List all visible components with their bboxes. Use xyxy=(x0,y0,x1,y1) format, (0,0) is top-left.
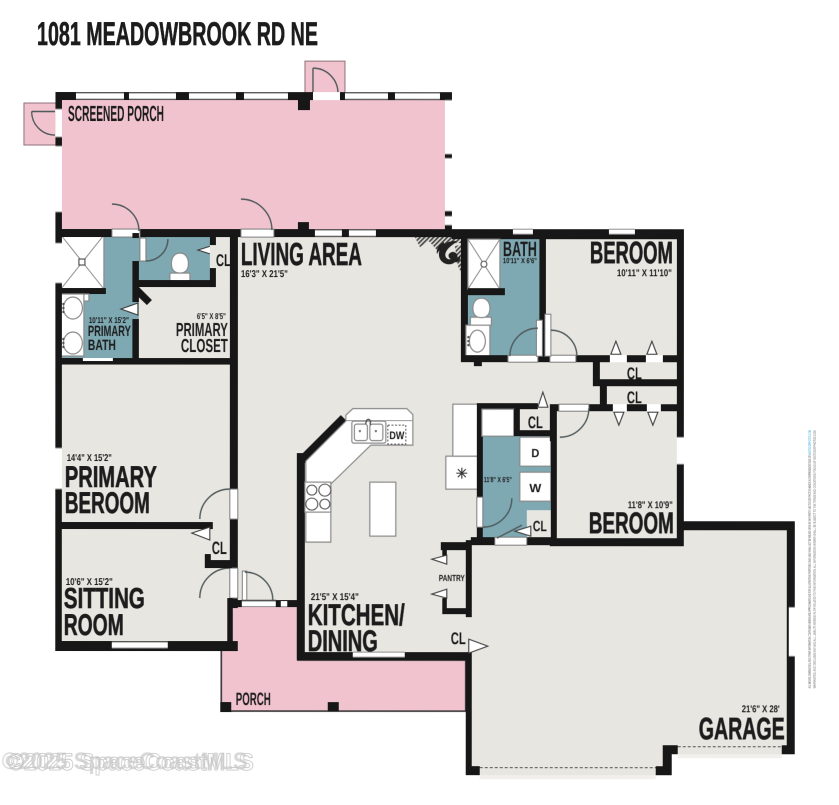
svg-text:CL: CL xyxy=(528,413,543,432)
svg-text:LIVING AREA: LIVING AREA xyxy=(241,236,362,272)
svg-text:1081 MEADOWBROOK RD NE: 1081 MEADOWBROOK RD NE xyxy=(37,15,318,52)
svg-text:PORCH: PORCH xyxy=(236,689,271,709)
svg-text:BEROOM: BEROOM xyxy=(65,487,150,520)
svg-text:CL: CL xyxy=(212,538,227,558)
svg-text:GARAGE: GARAGE xyxy=(699,711,785,746)
svg-text:DINING: DINING xyxy=(308,625,378,658)
svg-text:BEROOM: BEROOM xyxy=(589,507,674,540)
svg-text:BEROOM: BEROOM xyxy=(590,235,673,270)
svg-text:BATH: BATH xyxy=(88,337,116,354)
svg-text:DW: DW xyxy=(389,430,405,442)
svg-text:CL: CL xyxy=(451,629,466,648)
svg-text:11'8" X 6'5": 11'8" X 6'5" xyxy=(484,475,512,484)
svg-text:SCREENED PORCH: SCREENED PORCH xyxy=(68,101,164,126)
svg-text:CL: CL xyxy=(627,364,642,383)
svg-text:CL: CL xyxy=(533,518,547,535)
svg-text:ROOM: ROOM xyxy=(64,609,124,642)
svg-text:16'3" X 21'5": 16'3" X 21'5" xyxy=(241,269,288,280)
svg-text:CLOSET: CLOSET xyxy=(181,336,228,357)
svg-text:W: W xyxy=(529,481,542,495)
svg-text:10'11" X 6'6": 10'11" X 6'6" xyxy=(503,256,537,265)
svg-text:10'11" X 11'10": 10'11" X 11'10" xyxy=(617,268,672,279)
svg-text:©2025 SpaceCoastMLS: ©2025 SpaceCoastMLS xyxy=(8,749,254,776)
svg-text:PANTRY: PANTRY xyxy=(439,573,465,583)
svg-text:WARRANTIES, AND DISCLAIMS ANY: WARRANTIES, AND DISCLAIMS ANY AND ALL LI… xyxy=(813,430,817,688)
svg-text:D: D xyxy=(531,446,539,460)
svg-text:ALL IMAGES, DIMENSIONS, AND OT: ALL IMAGES, DIMENSIONS, AND OTHER INFORM… xyxy=(808,430,812,688)
svg-text:CL: CL xyxy=(627,388,642,407)
svg-text:CL: CL xyxy=(216,251,231,270)
